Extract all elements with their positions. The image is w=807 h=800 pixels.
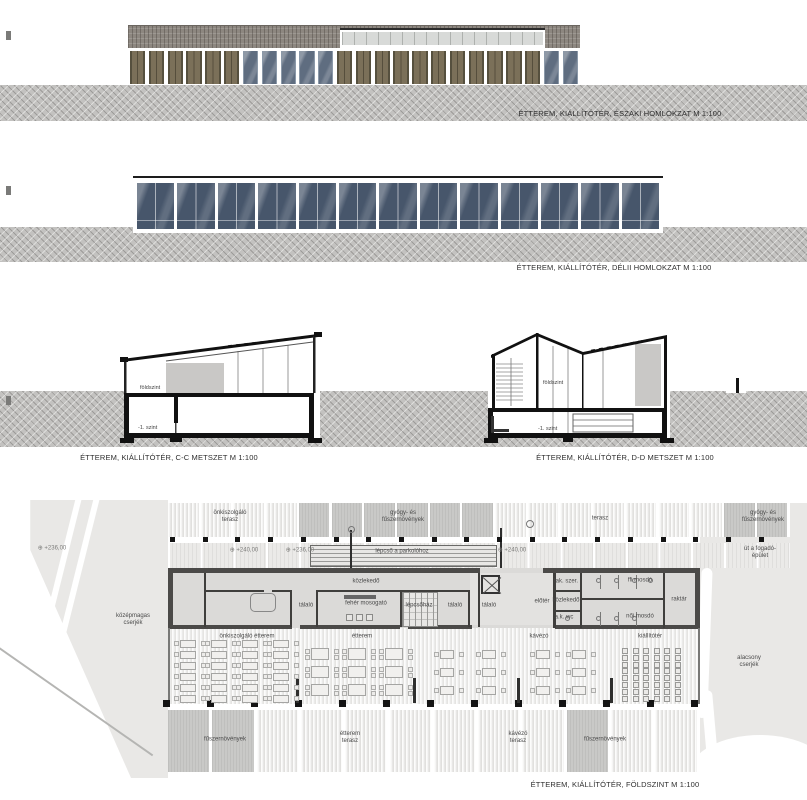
chair-symbol — [294, 696, 299, 701]
site-wall-detail-line — [736, 378, 739, 393]
chair-symbol — [305, 655, 310, 660]
table-symbol — [385, 666, 403, 678]
exhibit-stand — [664, 689, 670, 695]
chair-symbol — [174, 641, 179, 646]
exhibit-stand — [675, 668, 681, 674]
table-symbol — [311, 684, 329, 696]
section-cc-drawing: földszint -1. szint — [118, 323, 328, 451]
dining-west-glass-line — [168, 628, 170, 704]
caption-floor-plan: ÉTTEREM, KIÁLLÍTÓTÉR, FÖLDSZINT M 1:100 — [475, 780, 755, 789]
terrace-panel — [168, 503, 199, 537]
lift-shaft — [481, 575, 500, 594]
exhibit-stand — [643, 662, 649, 668]
drawing-sheet: ÉTTEREM, KIÁLLÍTÓTÉR, ÉSZAKI HOMLOKZAT M… — [0, 0, 807, 800]
terrace-panel — [434, 710, 475, 772]
section-cc-basement-label: -1. szint — [138, 425, 158, 431]
facade-column — [427, 700, 434, 707]
terrace-panel — [257, 710, 298, 772]
chair-symbol — [174, 663, 179, 668]
chair-symbol — [591, 670, 596, 675]
plan-label: terasz — [592, 516, 608, 523]
chair-symbol — [267, 663, 272, 668]
chair-symbol — [267, 641, 272, 646]
planting-panel — [299, 503, 330, 537]
chair-symbol — [501, 652, 506, 657]
exhibit-stand — [643, 675, 649, 681]
chair-symbol — [305, 649, 310, 654]
facade-column — [559, 700, 566, 707]
glass-pane — [379, 183, 416, 229]
exhibit-stand — [643, 648, 649, 654]
level-marker: ⊕ +240,00 — [230, 547, 259, 554]
chair-symbol — [434, 688, 439, 693]
chair-symbol — [267, 685, 272, 690]
chair-symbol — [305, 673, 310, 678]
chair-symbol — [236, 696, 241, 701]
pergola-column — [203, 537, 208, 542]
facade-bay-wood — [205, 51, 220, 84]
table-symbol — [440, 668, 454, 677]
exhibit-stand — [633, 648, 639, 654]
pergola-column — [726, 537, 731, 542]
exhibit-stand — [654, 675, 660, 681]
table-symbol — [242, 640, 258, 648]
plan-label: lépcsőház — [405, 603, 432, 610]
table-symbol — [180, 695, 196, 703]
exhibit-stand — [664, 682, 670, 688]
chair-symbol — [408, 655, 413, 660]
exhibit-stand — [622, 675, 628, 681]
chair-symbol — [459, 670, 464, 675]
west-wall — [168, 568, 173, 628]
chair-symbol — [236, 652, 241, 657]
sink — [356, 614, 363, 621]
chair-symbol — [371, 673, 376, 678]
facade-bay-wood — [130, 51, 145, 84]
chair-symbol — [305, 691, 310, 696]
chair-symbol — [555, 670, 560, 675]
chair-symbol — [555, 688, 560, 693]
caption-south-elevation: ÉTTEREM, KIÁLLÍTÓTÉR, DÉLII HOMLOKZAT M … — [474, 263, 754, 272]
section-cc-floor-label: földszint — [140, 385, 161, 391]
table-symbol — [242, 673, 258, 681]
plan-label: kávézó — [529, 634, 548, 641]
exhibit-stand — [664, 648, 670, 654]
service-south-wall — [555, 625, 700, 629]
level-marker: ⊕ +236,00 — [38, 545, 67, 552]
chair-symbol — [379, 649, 384, 654]
chair-symbol — [334, 655, 339, 660]
planting-panel — [332, 503, 363, 537]
exhibit-stand — [675, 655, 681, 661]
table-symbol — [211, 662, 227, 670]
wc-fixture — [614, 616, 619, 621]
exhibit-stand — [654, 696, 660, 702]
chair-symbol — [334, 691, 339, 696]
north-wall — [543, 568, 700, 573]
pergola-column — [170, 537, 175, 542]
glass-pane — [622, 183, 659, 229]
pergola-column — [235, 537, 240, 542]
exhibit-stand — [654, 689, 660, 695]
pergola-column — [595, 537, 600, 542]
exhibit-stand — [622, 655, 628, 661]
edge-mark — [6, 31, 11, 40]
partition-wall — [290, 590, 292, 627]
chair-symbol — [205, 674, 210, 679]
pergola-column — [399, 537, 404, 542]
staircase-plan — [402, 592, 438, 627]
chair-symbol — [236, 685, 241, 690]
terrace-panel — [560, 503, 591, 537]
terrace-panel — [522, 710, 563, 772]
exhibit-stand — [664, 662, 670, 668]
chair-symbol — [205, 663, 210, 668]
plan-label: kiállítótér — [638, 634, 662, 641]
chair-symbol — [236, 641, 241, 646]
plan-label: fűszernövények — [584, 737, 626, 744]
pergola-column — [530, 537, 535, 542]
exhibit-stand — [643, 689, 649, 695]
clerestory-glazing — [342, 32, 543, 45]
exhibit-stand — [654, 648, 660, 654]
chair-symbol — [294, 663, 299, 668]
service-south-wall — [168, 625, 292, 629]
chair-symbol — [530, 652, 535, 657]
chair-symbol — [305, 685, 310, 690]
facade-bay-wood — [149, 51, 164, 84]
planting-panel — [430, 503, 461, 537]
facade-column — [339, 700, 346, 707]
column-ring-symbol — [526, 520, 534, 528]
chair-symbol — [555, 652, 560, 657]
chair-symbol — [205, 685, 210, 690]
facade-bay-wood — [375, 51, 390, 84]
table-symbol — [482, 686, 496, 695]
south-elevation-building — [133, 176, 663, 233]
table-symbol — [348, 684, 366, 696]
chair-symbol — [408, 691, 413, 696]
partition-wall — [206, 590, 264, 592]
exhibit-stand — [654, 662, 660, 668]
glass-pane — [460, 183, 497, 229]
north-wall — [168, 568, 480, 573]
chair-symbol — [236, 663, 241, 668]
exhibit-stand — [633, 662, 639, 668]
planting-panel — [462, 503, 493, 537]
exhibit-stand — [643, 696, 649, 702]
plan-label: női mosdó — [626, 614, 654, 621]
facade-bay-wood — [525, 51, 540, 84]
pergola-column — [432, 537, 437, 542]
service-south-wall — [300, 625, 400, 629]
exhibit-stand — [675, 696, 681, 702]
glass-pane — [258, 183, 295, 229]
section-dd-floor-label: földszint — [543, 380, 564, 386]
chair-symbol — [174, 696, 179, 701]
chair-symbol — [294, 685, 299, 690]
table-symbol — [572, 668, 586, 677]
chair-symbol — [408, 649, 413, 654]
chair-symbol — [334, 673, 339, 678]
glass-pane — [339, 183, 376, 229]
chair-symbol — [174, 674, 179, 679]
partition-wall — [663, 573, 665, 628]
chair-symbol — [205, 641, 210, 646]
chair-symbol — [501, 670, 506, 675]
section-dd-basement-label: -1. szint — [538, 426, 558, 432]
terrace-panel — [691, 503, 722, 537]
facade-column — [691, 700, 698, 707]
chair-symbol — [408, 673, 413, 678]
table-symbol — [180, 673, 196, 681]
chair-symbol — [476, 670, 481, 675]
facade-bay-wood — [393, 51, 408, 84]
pergola-column — [628, 537, 633, 542]
clerestory-roof-edge — [340, 28, 545, 30]
chair-symbol — [342, 649, 347, 654]
plan-label: önkiszolgáló terasz — [213, 510, 246, 524]
chair-symbol — [530, 670, 535, 675]
east-wall — [695, 568, 700, 628]
exhibit-stand — [664, 696, 670, 702]
table-symbol — [572, 650, 586, 659]
table-symbol — [273, 695, 289, 703]
chair-symbol — [267, 696, 272, 701]
table-symbol — [536, 686, 550, 695]
glass-pane — [581, 183, 618, 229]
plan-label: gyógy- és fűszernövények — [742, 510, 784, 524]
chair-symbol — [434, 670, 439, 675]
chair-symbol — [334, 667, 339, 672]
exhibit-stand — [643, 682, 649, 688]
exhibit-stand — [675, 648, 681, 654]
chair-symbol — [294, 641, 299, 646]
plan-label: kávézó terasz — [508, 731, 527, 745]
table-symbol — [348, 666, 366, 678]
chair-symbol — [174, 652, 179, 657]
pergola-column — [268, 537, 273, 542]
wc-fixture — [614, 578, 619, 583]
plan-label: tálaló — [448, 603, 462, 610]
table-symbol — [482, 668, 496, 677]
exhibit-stand — [633, 696, 639, 702]
exhibit-stand — [622, 682, 628, 688]
exhibit-stand — [622, 648, 628, 654]
table-symbol — [211, 695, 227, 703]
buffet-counter — [250, 593, 276, 612]
zone-divider-wall — [517, 678, 520, 703]
exhibit-stand — [675, 682, 681, 688]
plan-label: középmagas cserjék — [116, 613, 150, 627]
exhibit-stand — [664, 668, 670, 674]
chair-symbol — [379, 655, 384, 660]
pergola-column — [301, 537, 306, 542]
pergola-column — [661, 537, 666, 542]
facade-bay-wood — [431, 51, 446, 84]
chair-symbol — [342, 673, 347, 678]
chair-symbol — [342, 691, 347, 696]
plan-label: a.k. wc — [555, 615, 574, 622]
chair-symbol — [371, 691, 376, 696]
caption-section-dd: ÉTTEREM, KIÁLLÍTÓTÉR, D-D METSZET M 1:10… — [485, 453, 765, 462]
facade-bay-glass — [281, 51, 296, 84]
table-symbol — [536, 650, 550, 659]
south-roof-edge — [133, 176, 663, 178]
plan-label: út a fogadó- épület — [744, 546, 776, 560]
chair-symbol — [379, 685, 384, 690]
facade-bay-glass — [299, 51, 314, 84]
chair-symbol — [591, 688, 596, 693]
glass-pane — [177, 183, 214, 229]
chair-symbol — [205, 652, 210, 657]
chair-symbol — [371, 685, 376, 690]
pergola-column — [693, 537, 698, 542]
chair-symbol — [267, 652, 272, 657]
table-symbol — [311, 648, 329, 660]
plan-label: közlekedő — [352, 579, 379, 586]
chair-symbol — [342, 667, 347, 672]
table-symbol — [242, 684, 258, 692]
south-glass-panes — [137, 183, 659, 229]
plan-label: étterem terasz — [340, 731, 360, 745]
chair-symbol — [459, 652, 464, 657]
exhibit-stand — [675, 662, 681, 668]
table-symbol — [348, 648, 366, 660]
chair-symbol — [408, 667, 413, 672]
caption-section-cc: ÉTTEREM, KIÁLLÍTÓTÉR, C-C METSZET M 1:10… — [29, 453, 309, 462]
plan-label: gyógy- és fűszernövények — [382, 510, 424, 524]
table-symbol — [273, 662, 289, 670]
plan-label: ffi mosdó — [628, 578, 652, 585]
glass-pane — [299, 183, 336, 229]
plan-label: alacsony cserjék — [737, 655, 761, 669]
facade-bay-glass — [318, 51, 333, 84]
table-symbol — [536, 668, 550, 677]
dining-east-glass-line — [698, 628, 700, 704]
facade-bay-wood — [337, 51, 352, 84]
table-symbol — [311, 666, 329, 678]
chair-symbol — [371, 667, 376, 672]
facade-bay-glass — [243, 51, 258, 84]
canopy-post-line — [350, 530, 352, 568]
facade-bay-wood — [469, 51, 484, 84]
exhibit-stand — [654, 682, 660, 688]
table-symbol — [242, 651, 258, 659]
facade-column — [603, 700, 610, 707]
chair-symbol — [236, 674, 241, 679]
exhibit-stand — [643, 668, 649, 674]
partition-wall — [204, 573, 206, 627]
facade-column — [163, 700, 170, 707]
exhibit-stand — [633, 682, 639, 688]
terrace-panel — [301, 710, 342, 772]
chair-symbol — [267, 674, 272, 679]
chair-symbol — [294, 674, 299, 679]
partition-wall — [436, 590, 470, 592]
column-ring-symbol — [348, 526, 355, 533]
facade-bay-wood — [487, 51, 502, 84]
pergola-column — [497, 537, 502, 542]
chair-symbol — [205, 696, 210, 701]
facade-column — [471, 700, 478, 707]
exhibit-stand — [633, 655, 639, 661]
wc-fixture — [596, 578, 601, 583]
partition-wall — [580, 573, 582, 628]
table-symbol — [211, 640, 227, 648]
glass-pane — [218, 183, 255, 229]
exhibit-stand — [654, 655, 660, 661]
exhibit-stand — [675, 689, 681, 695]
plan-label: közlekedő — [552, 598, 579, 605]
table-symbol — [385, 648, 403, 660]
partition-wall — [555, 610, 580, 612]
plan-label: előtér — [534, 599, 549, 606]
caption-north-elevation: ÉTTEREM, KIÁLLÍTÓTÉR, ÉSZAKI HOMLOKZAT M… — [480, 109, 760, 118]
chair-symbol — [459, 688, 464, 693]
terrace-panel — [659, 503, 690, 537]
chair-symbol — [476, 688, 481, 693]
terrace-panel — [655, 710, 696, 772]
exhibit-stand — [633, 668, 639, 674]
partition-wall — [316, 590, 318, 627]
level-marker: ⊕ +240,00 — [498, 547, 527, 554]
terrace-panel — [626, 503, 657, 537]
chair-symbol — [371, 655, 376, 660]
plan-label: tak. szer. — [554, 579, 578, 586]
plan-label: fehér mosogató — [345, 601, 387, 608]
facade-column — [383, 700, 390, 707]
section-dd-drawing: földszint -1. szint — [483, 316, 693, 451]
partition-wall — [555, 590, 580, 592]
chair-symbol — [371, 649, 376, 654]
pergola-column — [464, 537, 469, 542]
plan-label: tálaló — [482, 603, 496, 610]
table-symbol — [211, 684, 227, 692]
glass-pane — [420, 183, 457, 229]
chair-symbol — [408, 685, 413, 690]
exhibit-stand — [633, 675, 639, 681]
exhibit-stand — [622, 689, 628, 695]
chair-symbol — [566, 670, 571, 675]
exhibit-stand — [622, 662, 628, 668]
pergola-column — [759, 537, 764, 542]
sink — [346, 614, 353, 621]
chair-symbol — [379, 691, 384, 696]
table-symbol — [385, 684, 403, 696]
plan-label: raktár — [671, 597, 686, 604]
chair-symbol — [566, 652, 571, 657]
table-symbol — [273, 684, 289, 692]
chair-symbol — [334, 685, 339, 690]
table-symbol — [211, 673, 227, 681]
glass-pane — [137, 183, 174, 229]
facade-bay-wood — [506, 51, 521, 84]
chair-symbol — [501, 688, 506, 693]
facade-bay-wood — [412, 51, 427, 84]
table-symbol — [180, 640, 196, 648]
glass-pane — [501, 183, 538, 229]
kitchen-counter — [344, 595, 376, 599]
table-symbol — [242, 695, 258, 703]
partition-wall — [478, 573, 480, 627]
chair-symbol — [294, 652, 299, 657]
facade-bay-wood — [356, 51, 371, 84]
plan-label: étterem — [352, 634, 372, 641]
wc-fixture — [596, 616, 601, 621]
zone-divider-wall — [413, 678, 416, 703]
plan-label: tálaló — [299, 603, 313, 610]
